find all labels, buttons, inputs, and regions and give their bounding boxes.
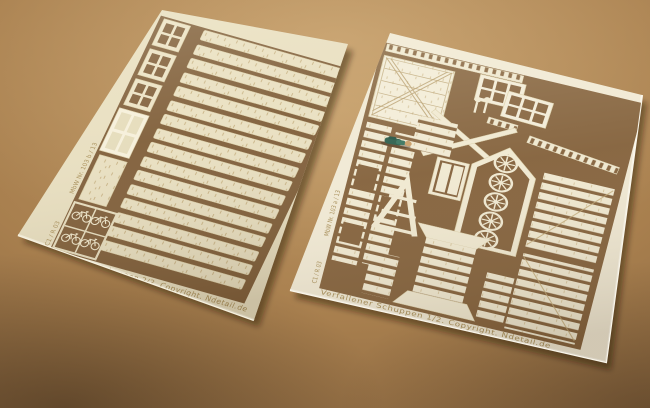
sheet-right-lighting — [290, 33, 642, 362]
scene-canvas: Verfallener Schuppen 2/2. Copyright. Nde… — [0, 0, 650, 408]
sheet-right-1of2: Verfallener Schuppen 1/2. Copyright. Nde… — [290, 33, 647, 370]
photo-of-lasercut-sheets: Verfallener Schuppen 2/2. Copyright. Nde… — [0, 0, 650, 408]
